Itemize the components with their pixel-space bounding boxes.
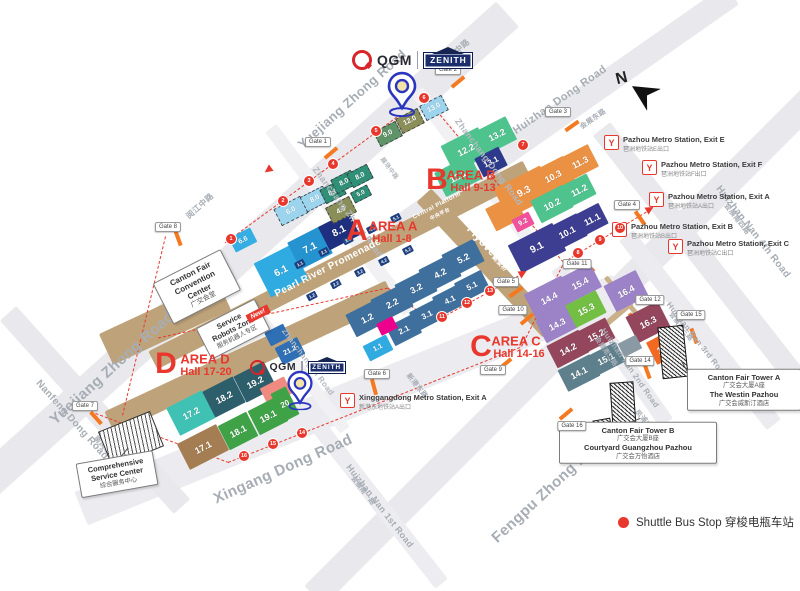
- gate-tag-gate-4: Gate 4: [614, 200, 640, 210]
- metro-logo-icon: Y: [642, 160, 657, 175]
- shuttle-stop-11: 11: [436, 311, 448, 323]
- shuttle-stop-7: 7: [517, 139, 529, 151]
- tower-b-courtyard-line: 广交会万怡酒店: [564, 452, 712, 460]
- metro-exit-text: Pazhou Metro Station, Exit E琶洲地铁站E出口: [623, 135, 725, 153]
- shuttle-bus-stop-icon: [618, 517, 629, 528]
- qgm-logo-icon: [352, 50, 372, 70]
- metro-exit: YPazhou Metro Station, Exit A琶洲地铁站A出口: [649, 192, 770, 210]
- area-halls-a: Hall 1-8: [372, 233, 411, 245]
- shuttle-stop-4: 4: [327, 158, 339, 170]
- metro-logo-icon: Y: [668, 239, 683, 254]
- metro-exit: YXinggangdong Metro Station, Exit A新港东地铁…: [340, 393, 487, 411]
- gate-tag-gate-5: Gate 5: [493, 277, 519, 287]
- shuttle-stop-8: 8: [572, 247, 584, 259]
- gate-tag-gate-8: Gate 8: [155, 222, 181, 232]
- location-pin-icon-2: [285, 370, 315, 415]
- logo-divider: [417, 51, 419, 69]
- area-letter-d: D: [155, 347, 177, 381]
- shuttle-stop-3: 3: [303, 175, 315, 187]
- hall-1.1: 1.1: [363, 335, 394, 362]
- tower-b-courtyard-line: Courtyard Guangzhou Pazhou: [564, 443, 712, 452]
- shuttle-stop-9: 9: [594, 234, 606, 246]
- area-halls-b: Hall 9-13: [450, 182, 495, 194]
- metro-exit-text: Pazhou Metro Station, Exit F琶洲地铁站F出口: [661, 160, 762, 178]
- metro-exit-text: Pazhou Metro Station, Exit A琶洲地铁站A出口: [668, 192, 770, 210]
- gate-tag-gate-7: Gate 7: [72, 401, 98, 411]
- metro-logo-icon: Y: [340, 393, 355, 408]
- zenith-logo: ZENITH: [423, 52, 473, 69]
- metro-exit-text: Pazhou Metro Station, Exit B琶洲地铁站B出口: [631, 222, 733, 240]
- gate-tag-gate-3: Gate 3: [545, 107, 571, 117]
- promenade-tag-5.2: 5.2: [402, 245, 414, 256]
- qgm-logo-icon: [250, 360, 265, 375]
- route-arrow-icon: [262, 164, 273, 175]
- qgm-logo-text: QGM: [377, 52, 412, 68]
- gate-tag-gate-15: Gate 15: [676, 310, 705, 320]
- shuttle-stop-13: 13: [484, 285, 496, 297]
- road-label: 阅江中路: [184, 191, 216, 222]
- tower-b-courtyard-line: 广交会大厦B座: [564, 435, 712, 443]
- area-halls-d: Hall 17-20: [180, 366, 231, 378]
- zenith-logo-roof-icon: [315, 357, 339, 362]
- shuttle-stop-5: 5: [370, 125, 382, 137]
- area-halls-c: Hall 14-16: [493, 348, 544, 360]
- shuttle-stop-14: 14: [296, 427, 308, 439]
- zenith-logo-text: ZENITH: [312, 364, 341, 371]
- shuttle-bus-legend-label: Shuttle Bus Stop 穿梭电瓶车站: [636, 514, 794, 530]
- tower-a-westin-line: 广交会威斯汀酒店: [692, 399, 796, 407]
- area-title-a: AREA A: [369, 219, 418, 234]
- road-label: 展场中路: [379, 155, 402, 181]
- gate-tag-gate-9: Gate 9: [480, 365, 506, 375]
- area-title-b: AREA B: [446, 168, 495, 183]
- shuttle-stop-10: 10: [614, 222, 626, 234]
- zenith-logo-roof-icon: [432, 47, 464, 54]
- location-pin-icon-1: [385, 71, 419, 122]
- shuttle-stop-12: 12: [461, 297, 473, 309]
- compass: N: [608, 68, 660, 114]
- metro-exit-text: Pazhou Metro Station, Exit C琶洲地铁站C出口: [687, 239, 789, 257]
- compass-needle-icon: [625, 75, 661, 111]
- metro-logo-icon: Y: [604, 135, 619, 150]
- area-letter-b: B: [426, 163, 448, 197]
- gate-tag-gate-10: Gate 10: [498, 305, 527, 315]
- area-title-d: AREA D: [180, 352, 229, 367]
- metro-exit: YPazhou Metro Station, Exit E琶洲地铁站E出口: [604, 135, 725, 153]
- gate-tag-gate-11: Gate 11: [563, 259, 592, 269]
- gate-road-marker: [173, 230, 182, 246]
- area-letter-c: C: [470, 330, 492, 364]
- metro-exit: YPazhou Metro Station, Exit B琶洲地铁站B出口: [612, 222, 733, 240]
- metro-exit: YPazhou Metro Station, Exit C琶洲地铁站C出口: [668, 239, 789, 257]
- gate-tag-gate-1: Gate 1: [305, 137, 331, 147]
- gate-tag-gate-6: Gate 6: [364, 369, 390, 379]
- tower-a-westin-line: 广交会大厦A座: [692, 382, 796, 390]
- tower-a-westin: Canton Fair Tower A广交会大厦A座The Westin Paz…: [687, 369, 800, 411]
- gate-tag-gate-12: Gate 12: [635, 295, 664, 305]
- compass-north-label: N: [614, 69, 630, 89]
- shuttle-stop-1: 1: [225, 233, 237, 245]
- gate-tag-gate-14: Gate 14: [625, 356, 654, 366]
- gate-road-marker: [559, 407, 574, 420]
- exhibitor-logos-1: QGMZENITH: [352, 50, 473, 70]
- metro-exit-text: Xinggangdong Metro Station, Exit A新港东地铁站…: [359, 393, 487, 411]
- area-letter-a: A: [346, 214, 368, 248]
- zenith-logo-text: ZENITH: [430, 55, 467, 65]
- canton-fair-complex-map: N Shuttle Bus Stop 穿梭电瓶车站 6.66.17.18.16.…: [0, 0, 800, 591]
- area-title-c: AREA C: [491, 334, 540, 349]
- shuttle-stop-6: 6: [418, 92, 430, 104]
- tower-a-westin-line: Canton Fair Tower A: [692, 373, 796, 382]
- tower-a-westin-line: The Westin Pazhou: [692, 390, 796, 399]
- canton-fair-tower-a: [657, 325, 688, 379]
- shuttle-stop-15: 15: [267, 438, 279, 450]
- metro-exit: YPazhou Metro Station, Exit F琶洲地铁站F出口: [642, 160, 762, 178]
- gate-tag-gate-16: Gate 16: [557, 421, 586, 431]
- shuttle-bus-legend: Shuttle Bus Stop 穿梭电瓶车站: [618, 514, 794, 530]
- shuttle-stop-2: 2: [277, 195, 289, 207]
- shuttle-stop-16: 16: [238, 450, 250, 462]
